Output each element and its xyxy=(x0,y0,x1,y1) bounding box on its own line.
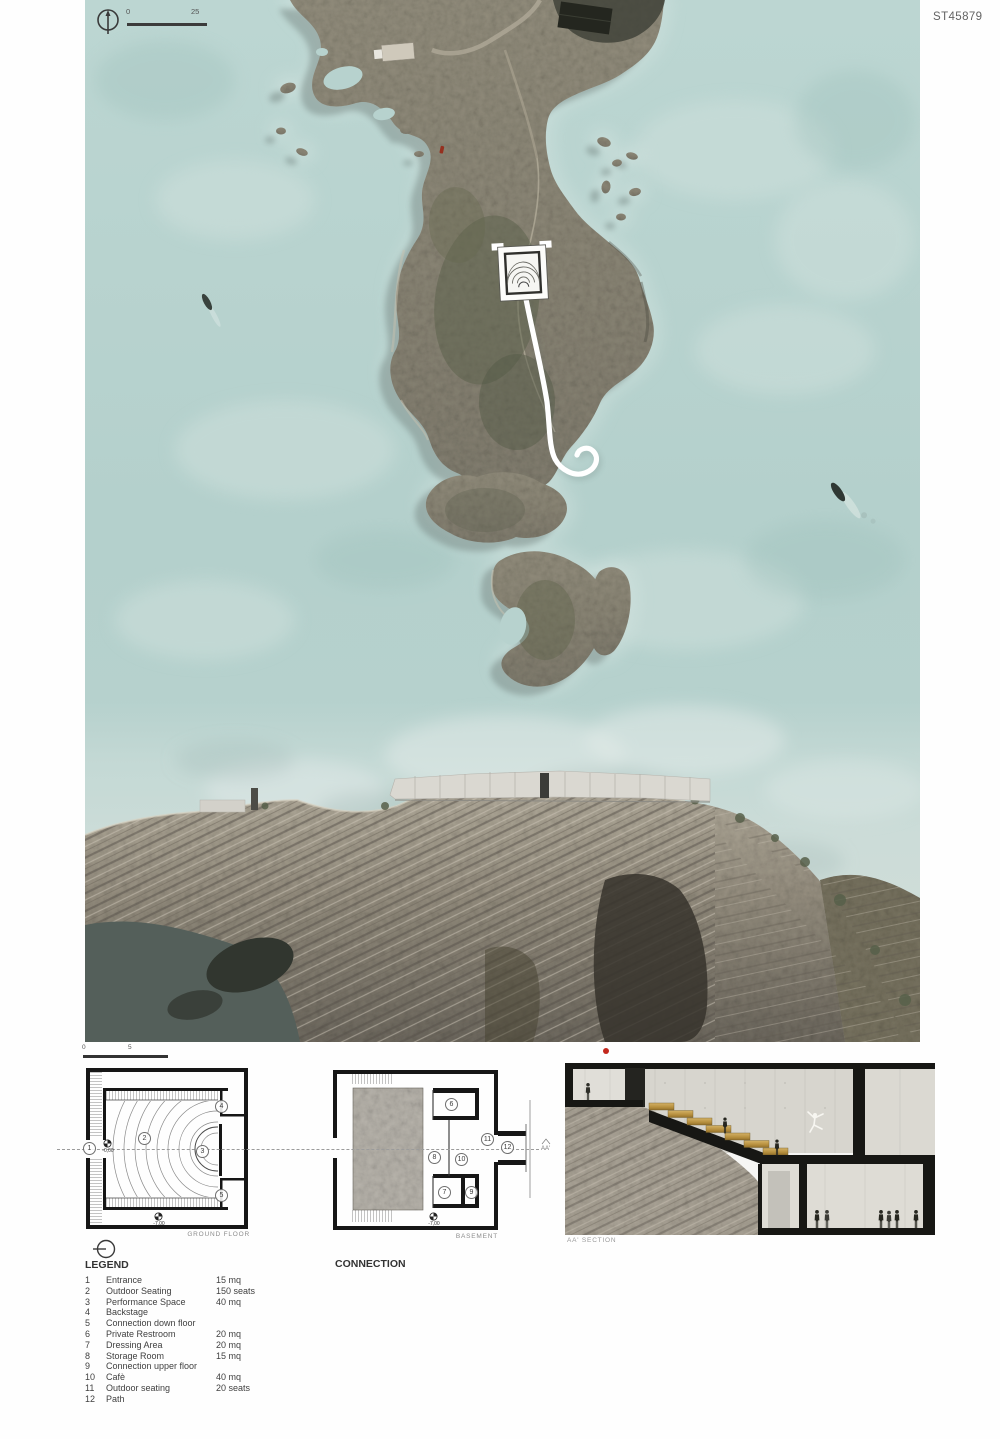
room-number-4: 4 xyxy=(215,1100,228,1113)
legend-item-name: Outdoor Seating xyxy=(106,1286,216,1297)
legend-item: 7 Dressing Area 20 mq xyxy=(85,1340,320,1351)
ruin-tower xyxy=(251,788,258,810)
level-marker-icon xyxy=(429,1212,438,1221)
level-label-basement: -7,00 xyxy=(420,1221,448,1227)
connection-title: CONNECTION xyxy=(335,1258,935,1270)
legend-item-name: Performance Space xyxy=(106,1297,216,1308)
legend-item-number: 2 xyxy=(85,1286,106,1297)
section-drawing xyxy=(565,1063,935,1235)
legend-item: 2 Outdoor Seating 150 seats xyxy=(85,1286,320,1297)
legend-item-number: 1 xyxy=(85,1275,106,1286)
legend-item-number: 9 xyxy=(85,1361,106,1372)
legend-item-value: 15 mq xyxy=(216,1275,320,1286)
red-dot-marker xyxy=(603,1048,609,1054)
legend-item-number: 11 xyxy=(85,1383,106,1394)
legend-item-name: Path xyxy=(106,1394,216,1405)
legend-item-value: 15 mq xyxy=(216,1351,320,1362)
legend-item-name: Connection upper floor xyxy=(106,1361,216,1372)
legend-item: 4 Backstage xyxy=(85,1307,320,1318)
legend-item: 11 Outdoor seating 20 seats xyxy=(85,1383,320,1394)
legend-item-value: 40 mq xyxy=(216,1372,320,1383)
legend-item-name: Private Restroom xyxy=(106,1329,216,1340)
legend-item-name: Entrance xyxy=(106,1275,216,1286)
legend-item-value xyxy=(216,1361,320,1372)
legend-item-name: Dressing Area xyxy=(106,1340,216,1351)
legend-item-name: Backstage xyxy=(106,1307,216,1318)
legend-item-name: Cafè xyxy=(106,1372,216,1383)
level-label-entrance: -0,00 xyxy=(94,1148,122,1154)
room-number-7: 7 xyxy=(438,1186,451,1199)
room-number-10: 10 xyxy=(455,1153,468,1166)
section-label: AA' SECTION xyxy=(567,1237,616,1244)
legend-item: 8 Storage Room 15 mq xyxy=(85,1351,320,1362)
legend-item-name: Connection down floor xyxy=(106,1318,216,1329)
room-number-12: 12 xyxy=(501,1141,514,1154)
level-marker-icon xyxy=(103,1139,112,1148)
ground-floor-label: GROUND FLOOR xyxy=(168,1231,250,1238)
legend-item-name: Storage Room xyxy=(106,1351,216,1362)
room-number-3: 3 xyxy=(196,1145,209,1158)
legend-title: LEGEND xyxy=(85,1259,320,1271)
legend-item-value xyxy=(216,1318,320,1329)
legend-item: 1 Entrance 15 mq xyxy=(85,1275,320,1286)
plan-north-icon xyxy=(93,1239,119,1259)
room-number-9: 9 xyxy=(465,1186,478,1199)
north-arrow-icon xyxy=(94,5,122,41)
connection-text-block: CONNECTION xyxy=(335,1258,935,1280)
map-scale-bar xyxy=(127,23,207,26)
legend-item-value: 20 seats xyxy=(216,1383,320,1394)
legend-item-number: 10 xyxy=(85,1372,106,1383)
section-mark-label: AA' xyxy=(541,1146,550,1152)
theater-plan-icon xyxy=(491,240,554,301)
legend-item-name: Outdoor seating xyxy=(106,1383,216,1394)
level-marker-icon xyxy=(154,1212,163,1221)
legend-item-value: 150 seats xyxy=(216,1286,320,1297)
map-scale-start: 0 xyxy=(126,7,130,16)
legend-item-value: 20 mq xyxy=(216,1340,320,1351)
legend-rows: 1 Entrance 15 mq 2 Outdoor Seating 150 s… xyxy=(85,1275,320,1405)
legend-item-number: 5 xyxy=(85,1318,106,1329)
legend-item-number: 12 xyxy=(85,1394,106,1405)
section-line-aa xyxy=(57,1149,539,1150)
level-label-ground-low: -7,00 xyxy=(145,1221,173,1227)
basement-label: BASEMENT xyxy=(428,1233,498,1240)
seating-rows xyxy=(113,1045,254,1244)
legend-item: 12 Path xyxy=(85,1394,320,1405)
legend-item-number: 6 xyxy=(85,1329,106,1340)
legend-item-value xyxy=(216,1307,320,1318)
legend-item: 5 Connection down floor xyxy=(85,1318,320,1329)
room-number-2: 2 xyxy=(138,1132,151,1145)
legend-item-number: 3 xyxy=(85,1297,106,1308)
legend-item: 9 Connection upper floor xyxy=(85,1361,320,1372)
site-aerial-photomontage xyxy=(85,0,920,1042)
board-code: ST45879 xyxy=(933,11,982,23)
legend-item: 10 Cafè 40 mq xyxy=(85,1372,320,1383)
room-number-5: 5 xyxy=(215,1189,228,1202)
legend-item-number: 8 xyxy=(85,1351,106,1362)
map-scale-end: 25 xyxy=(191,7,199,16)
legend-item: 6 Private Restroom 20 mq xyxy=(85,1329,320,1340)
presentation-board: 0 25 ST45879 0 5 xyxy=(0,0,1000,1439)
legend-item-number: 4 xyxy=(85,1307,106,1318)
basement-plan xyxy=(330,1064,562,1239)
legend-item: 3 Performance Space 40 mq xyxy=(85,1297,320,1308)
legend-item-value: 40 mq xyxy=(216,1297,320,1308)
legend-item-number: 7 xyxy=(85,1340,106,1351)
room-number-8: 8 xyxy=(428,1151,441,1164)
legend-item-value: 20 mq xyxy=(216,1329,320,1340)
legend-item-value xyxy=(216,1394,320,1405)
room-number-11: 11 xyxy=(481,1133,494,1146)
legend: LEGEND 1 Entrance 15 mq 2 Outdoor Seatin… xyxy=(85,1259,320,1405)
room-number-6: 6 xyxy=(445,1098,458,1111)
